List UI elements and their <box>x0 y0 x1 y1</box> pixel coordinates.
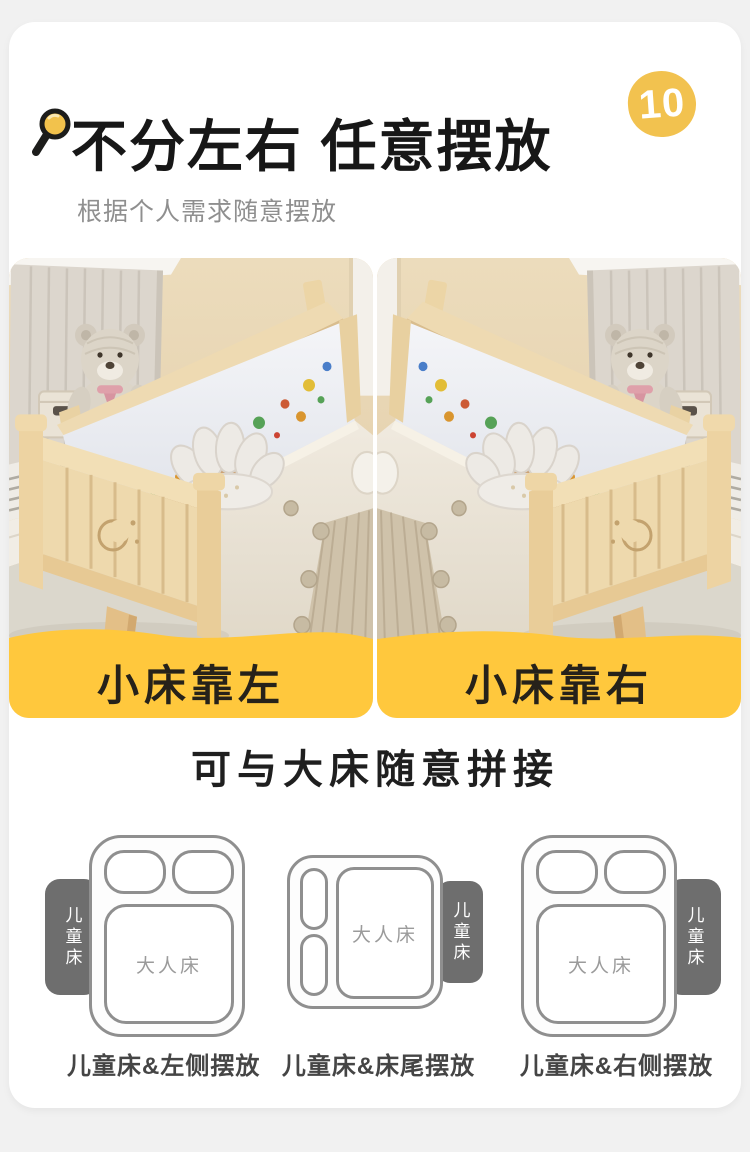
section-heading: 可与大床随意拼接 <box>9 746 741 794</box>
diagram-caption-right: 儿童床&右侧摆放 <box>519 1053 714 1081</box>
adult-bed-label: 大人床 <box>136 951 202 978</box>
banner-wave <box>377 626 741 648</box>
adult-bed-mattress: 大人床 <box>536 904 666 1024</box>
banner-label: 小床靠左 <box>97 652 285 713</box>
diagram-caption-foot: 儿童床&床尾摆放 <box>281 1053 476 1081</box>
magnifier-icon <box>31 106 71 168</box>
adult-bed-mattress: 大人床 <box>336 867 434 999</box>
pillow <box>604 850 666 894</box>
banner-left: 小床靠左 <box>9 646 373 718</box>
pillow <box>104 850 166 894</box>
content-card: 不分左右 任意摆放 10 根据个人需求随意摆放 <box>9 22 741 1108</box>
bed-room-illustration <box>9 258 373 648</box>
child-bed-label: 儿童床 <box>682 906 707 969</box>
subtitle: 根据个人需求随意摆放 <box>77 192 337 228</box>
pillow <box>300 868 328 930</box>
adult-bed-label: 大人床 <box>352 920 418 947</box>
banner-wave <box>9 626 373 648</box>
pillow <box>172 850 234 894</box>
diagram-caption-left: 儿童床&左侧摆放 <box>67 1053 257 1081</box>
step-badge: 10 <box>626 69 698 140</box>
banner-right: 小床靠右 <box>377 646 741 718</box>
adult-bed-outline: 大人床 <box>89 835 245 1037</box>
child-bed-label: 儿童床 <box>60 906 85 969</box>
photo-bed-left: 小床靠左 <box>9 258 373 718</box>
adult-bed-mattress: 大人床 <box>104 904 234 1024</box>
page-title: 不分左右 任意摆放 <box>71 102 591 183</box>
diagram-foot-placement: 儿童床 大人床 <box>287 855 487 1009</box>
banner-label: 小床靠右 <box>465 652 653 713</box>
diagram-right-placement: 儿童床 大人床 <box>521 835 721 1037</box>
adult-bed-outline: 大人床 <box>521 835 677 1037</box>
child-bed-tab: 儿童床 <box>437 881 483 983</box>
bed-room-illustration <box>377 258 741 648</box>
diagram-left-placement: 儿童床 大人床 <box>45 835 245 1037</box>
adult-bed-outline: 大人床 <box>287 855 443 1009</box>
adult-bed-label: 大人床 <box>568 951 634 978</box>
child-bed-label: 儿童床 <box>448 901 473 964</box>
pillow <box>536 850 598 894</box>
pillow <box>300 934 328 996</box>
photo-bed-right: 小床靠右 <box>377 258 741 718</box>
